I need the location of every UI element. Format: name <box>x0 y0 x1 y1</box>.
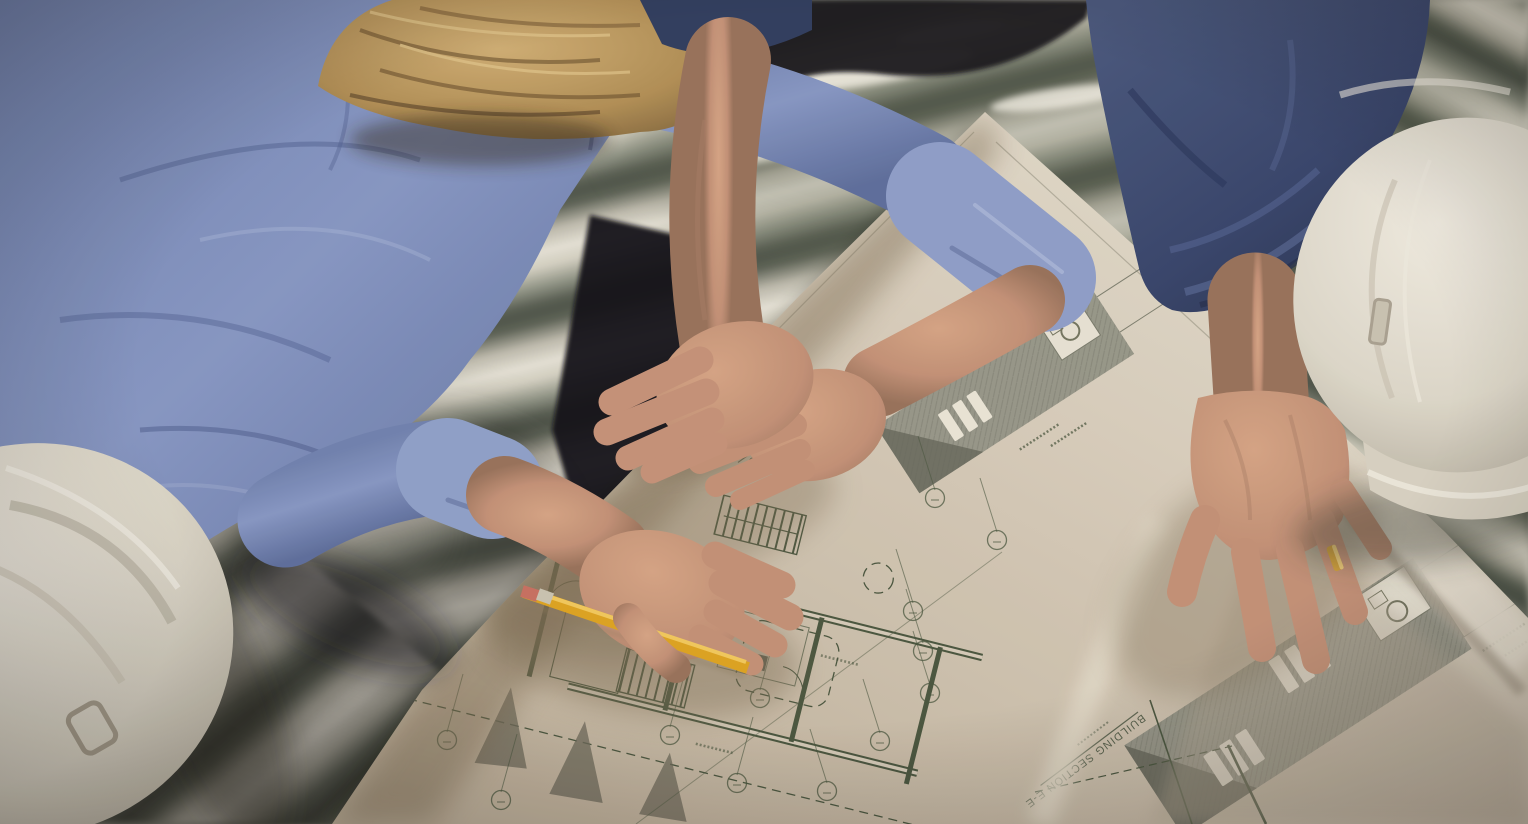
scene-svg: BUILDING SECTION F-F BUILDING SECTION E-… <box>0 0 1528 824</box>
warm-tint-overlay <box>0 0 1528 824</box>
construction-blueprint-photo: BUILDING SECTION F-F BUILDING SECTION E-… <box>0 0 1528 824</box>
